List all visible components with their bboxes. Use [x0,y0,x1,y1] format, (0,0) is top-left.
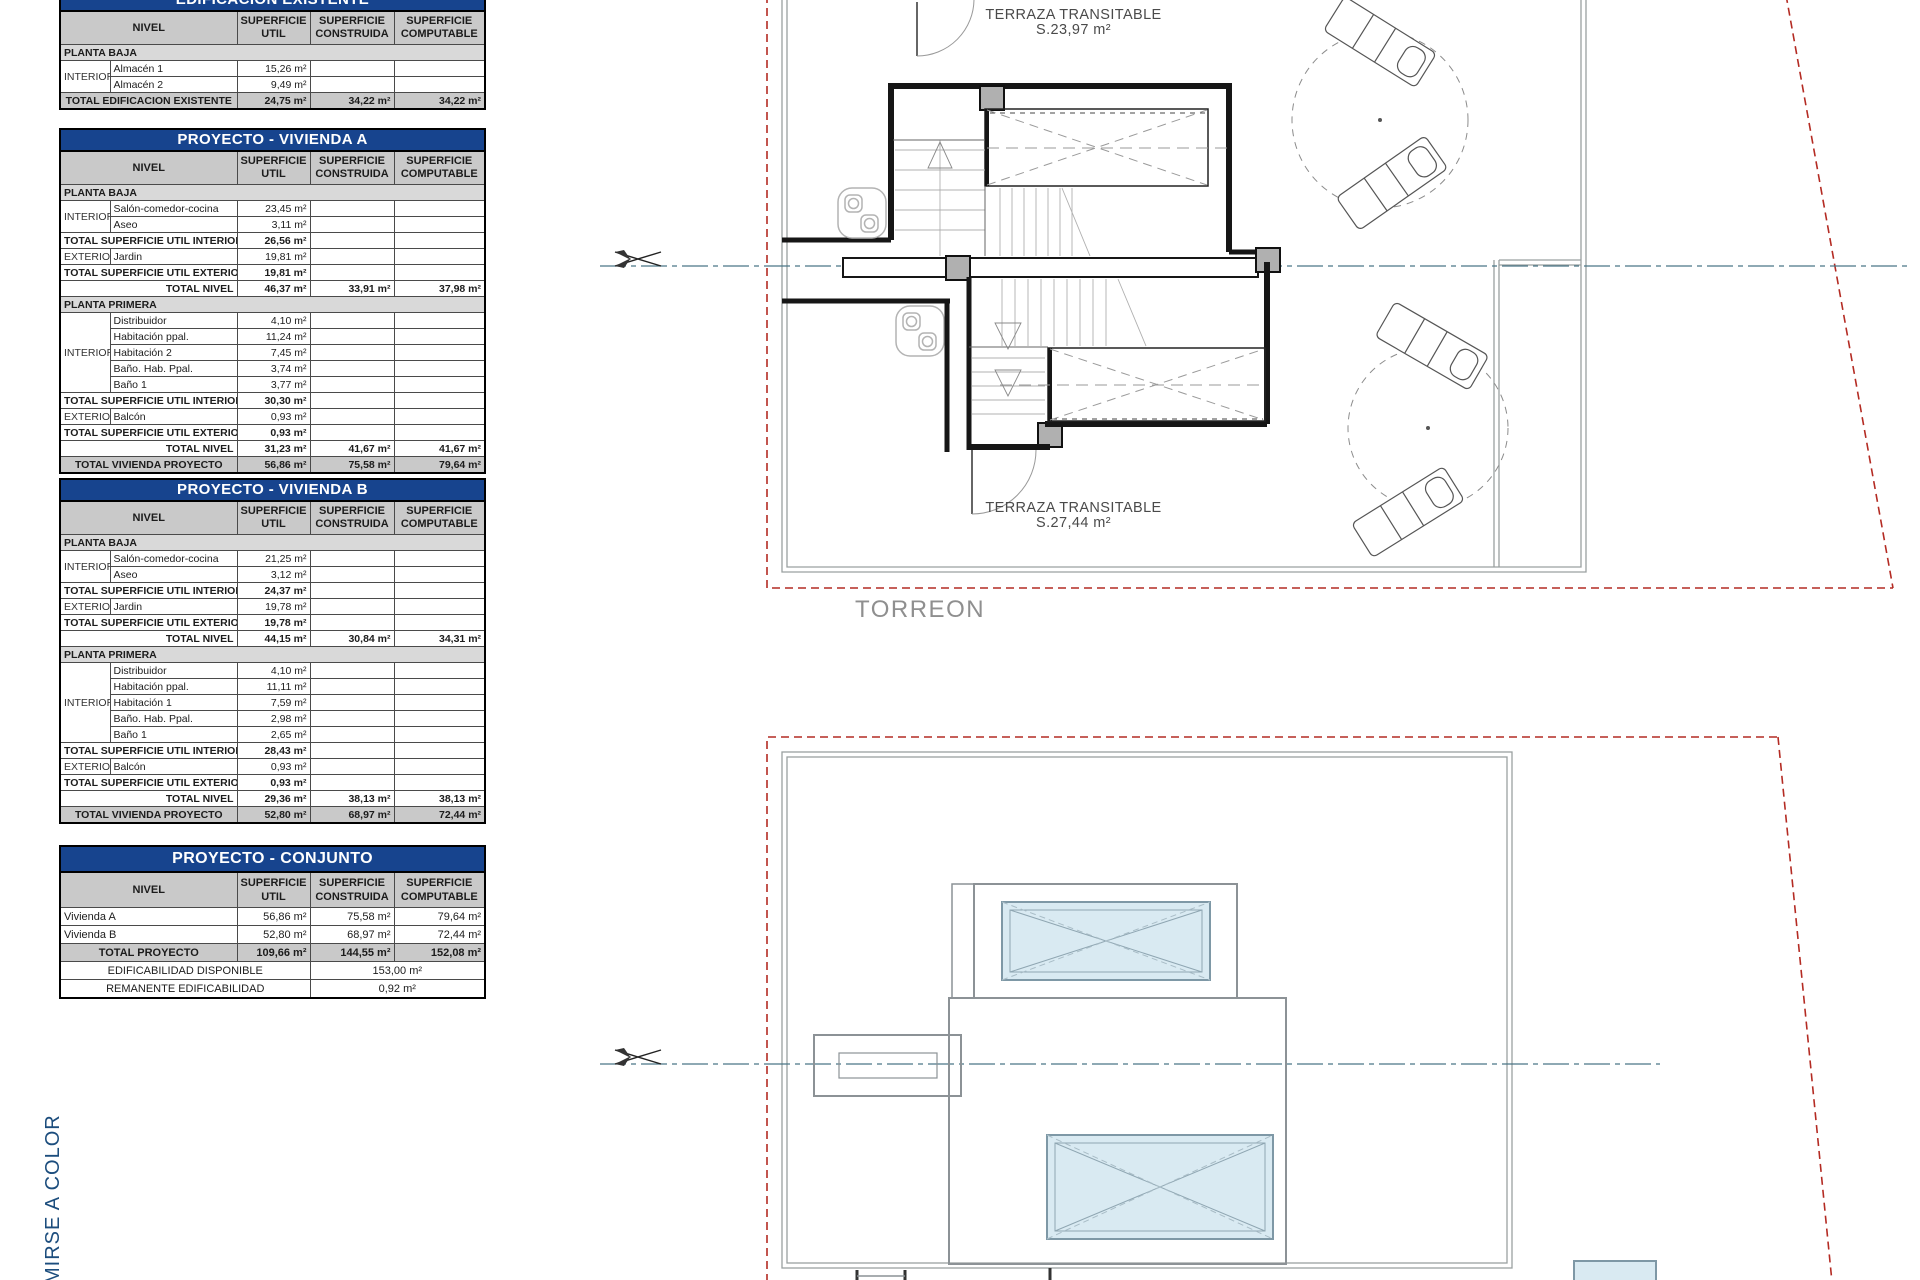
table-row: INTERIORDistribuidor4,10 m² [60,313,485,329]
grand-total-value: 75,58 m² [310,457,394,474]
area-value: 3,11 m² [237,217,310,233]
table-row: INTERIORSalón-comedor-cocina23,45 m² [60,201,485,217]
group-label: EXTERIOR [60,599,110,615]
area-value [310,345,394,361]
level-total-value: 38,13 m² [310,791,394,807]
bottom-plan [600,737,1832,1280]
plot-boundary-red [767,737,1832,1280]
grand-total-value: 109,66 m² [237,944,310,962]
area-value [310,377,394,393]
torreon-label: TORREON [855,596,985,624]
pool-skylight [1047,1135,1273,1239]
area-value [310,599,394,615]
level-total-value: 41,67 m² [310,441,394,457]
group-label: INTERIOR [60,201,110,233]
table-row: INTERIORAlmacén 115,26 m² [60,61,485,77]
col-header-nivel: NIVEL [60,501,237,535]
grand-total-label: TOTAL PROYECTO [60,944,237,962]
table-row: NIVELSUPERFICIE UTILSUPERFICIE CONSTRUID… [60,11,485,45]
area-value: 4,10 m² [237,663,310,679]
subtotal-label: TOTAL SUPERFICIE UTIL INTERIOR [60,583,237,599]
col-header-nivel: NIVEL [60,151,237,185]
col-header-construida: SUPERFICIE CONSTRUIDA [310,872,394,908]
area-value [394,345,485,361]
grand-total-value: 79,64 m² [394,457,485,474]
area-value [310,679,394,695]
section-row: PLANTA BAJA [60,185,485,201]
subtotal-value [394,393,485,409]
area-value [310,759,394,775]
terraza-label-top-line2: S.23,97 m² [951,23,1196,38]
table-row: Baño. Hab. Ppal.3,74 m² [60,361,485,377]
room-name: Habitación 2 [110,345,237,361]
table-row: Habitación ppal.11,24 m² [60,329,485,345]
grand-total-value: 24,75 m² [237,93,310,110]
table-row: NIVELSUPERFICIE UTILSUPERFICIE CONSTRUID… [60,151,485,185]
col-header-util: SUPERFICIE UTIL [237,11,310,45]
col-header-util: SUPERFICIE UTIL [237,501,310,535]
room-name: Habitación ppal. [110,679,237,695]
subtotal-value [394,425,485,441]
terraza-label-bottom-line1: TERRAZA TRANSITABLE [951,501,1196,516]
table-row: EXTERIORJardin19,81 m² [60,249,485,265]
table-row: Aseo3,11 m² [60,217,485,233]
table-row: PLANTA PRIMERA [60,297,485,313]
table-row: TOTAL SUPERFICIE UTIL EXTERIOR0,93 m² [60,425,485,441]
subtotal-value [310,425,394,441]
subtotal-value [310,265,394,281]
subtotal-label: TOTAL SUPERFICIE UTIL INTERIOR [60,743,237,759]
room-name: Distribuidor [110,313,237,329]
subtotal-value [310,743,394,759]
area-value [394,711,485,727]
area-value: 0,93 m² [237,409,310,425]
group-label: INTERIOR [60,61,110,93]
area-value [394,551,485,567]
room-name: Jardin [110,249,237,265]
table-row: TOTAL VIVIENDA PROYECTO56,86 m²75,58 m²7… [60,457,485,474]
dwelling-label: Vivienda A [60,908,237,926]
area-value: 3,77 m² [237,377,310,393]
subtotal-value [394,743,485,759]
subtotal-label: TOTAL SUPERFICIE UTIL EXTERIOR [60,265,237,281]
group-label: INTERIOR [60,313,110,393]
area-table-3: PROYECTO - CONJUNTONIVELSUPERFICIE UTILS… [59,845,486,999]
cutoff-walls [857,1268,1050,1280]
subtotal-value: 24,37 m² [237,583,310,599]
grand-total-label: TOTAL EDIFICACION EXISTENTE [60,93,237,110]
area-value: 11,24 m² [237,329,310,345]
level-total-label: TOTAL NIVEL [60,281,237,297]
level-total-value: 46,37 m² [237,281,310,297]
section-marker [615,250,661,268]
section-row: PLANTA PRIMERA [60,647,485,663]
table-row: NIVELSUPERFICIE UTILSUPERFICIE CONSTRUID… [60,501,485,535]
table-row: EXTERIORBalcón0,93 m² [60,409,485,425]
area-value [310,409,394,425]
room-name: Salón-comedor-cocina [110,201,237,217]
sun-lounger [1324,0,1437,88]
subtotal-value [394,233,485,249]
area-value [394,759,485,775]
room-name: Distribuidor [110,663,237,679]
section-row: PLANTA BAJA [60,535,485,551]
subtotal-label: TOTAL SUPERFICIE UTIL INTERIOR [60,393,237,409]
area-value: 19,81 m² [237,249,310,265]
table-row: TOTAL SUPERFICIE UTIL EXTERIOR19,81 m² [60,265,485,281]
group-label: EXTERIOR [60,249,110,265]
section-marker [615,1048,661,1066]
summary-label: EDIFICABILIDAD DISPONIBLE [60,962,310,980]
area-value [394,567,485,583]
grand-total-value: 52,80 m² [237,807,310,824]
area-table-0: EDIFICACION EXISTENTENIVELSUPERFICIE UTI… [59,0,486,110]
group-label: INTERIOR [60,551,110,583]
area-value [394,377,485,393]
table-row: Vivienda B52,80 m²68,97 m²72,44 m² [60,926,485,944]
table-row: TOTAL NIVEL46,37 m²33,91 m²37,98 m² [60,281,485,297]
room-name: Almacén 1 [110,61,237,77]
table-row: TOTAL NIVEL44,15 m²30,84 m²34,31 m² [60,631,485,647]
table-row: Vivienda A56,86 m²75,58 m²79,64 m² [60,908,485,926]
table-title: PROYECTO - VIVIENDA A [60,129,485,151]
area-value: 15,26 m² [237,61,310,77]
pool-skylight-partial [1574,1261,1656,1280]
subtotal-value: 0,93 m² [237,775,310,791]
area-value [310,711,394,727]
area-value: 7,45 m² [237,345,310,361]
grand-total-value: 152,08 m² [394,944,485,962]
level-total-value: 29,36 m² [237,791,310,807]
table-row: REMANENTE EDIFICABILIDAD0,92 m² [60,980,485,999]
table-row: PROYECTO - VIVIENDA B [60,479,485,501]
area-value: 23,45 m² [237,201,310,217]
area-value: 9,49 m² [237,77,310,93]
subtotal-label: TOTAL SUPERFICIE UTIL EXTERIOR [60,615,237,631]
party-wall [843,258,1258,277]
area-value: 7,59 m² [237,695,310,711]
table-row: PLANTA BAJA [60,45,485,61]
table-row: Baño 12,65 m² [60,727,485,743]
area-value: 11,11 m² [237,679,310,695]
col-header-util: SUPERFICIE UTIL [237,151,310,185]
table-title: EDIFICACION EXISTENTE [60,0,485,11]
table-row: Aseo3,12 m² [60,567,485,583]
subtotal-value [310,775,394,791]
area-value [310,217,394,233]
subtotal-value [394,615,485,631]
area-value: 19,78 m² [237,599,310,615]
section-row: PLANTA PRIMERA [60,297,485,313]
col-header-computable: SUPERFICIE COMPUTABLE [394,151,485,185]
dwelling-value: 52,80 m² [237,926,310,944]
area-value: 21,25 m² [237,551,310,567]
room-name: Balcón [110,409,237,425]
subtotal-value [394,265,485,281]
roof-hatch-a [985,109,1229,186]
table-title: PROYECTO - CONJUNTO [60,846,485,872]
group-label: EXTERIOR [60,409,110,425]
area-table-1: PROYECTO - VIVIENDA ANIVELSUPERFICIE UTI… [59,128,486,474]
dwelling-label: Vivienda B [60,926,237,944]
col-header-nivel: NIVEL [60,11,237,45]
terraza-label-bottom: TERRAZA TRANSITABLE S.27,44 m² [951,501,1196,531]
table-row: TOTAL SUPERFICIE UTIL INTERIOR30,30 m² [60,393,485,409]
subtotal-value: 0,93 m² [237,425,310,441]
terraza-label-top-line1: TERRAZA TRANSITABLE [951,8,1196,23]
area-value [394,313,485,329]
subtotal-value: 30,30 m² [237,393,310,409]
sun-lounger [1375,302,1489,391]
plan-sheet: TERRAZA TRANSITABLE S.23,97 m² TERRAZA T… [0,0,1920,1280]
level-total-value: 31,23 m² [237,441,310,457]
print-color-note: MIRSE A COLOR [42,1114,65,1280]
dwelling-value: 79,64 m² [394,908,485,926]
col-header-computable: SUPERFICIE COMPUTABLE [394,501,485,535]
subtotal-value [310,393,394,409]
area-value [394,61,485,77]
area-value [310,361,394,377]
area-value [310,249,394,265]
area-value [310,201,394,217]
subtotal-value: 19,78 m² [237,615,310,631]
room-name: Habitación ppal. [110,329,237,345]
level-total-value: 44,15 m² [237,631,310,647]
col-header-nivel: NIVEL [60,872,237,908]
sun-lounger [1336,136,1447,231]
room-name: Balcón [110,759,237,775]
area-value [394,663,485,679]
table-row: TOTAL SUPERFICIE UTIL EXTERIOR0,93 m² [60,775,485,791]
area-value [394,329,485,345]
walls-unit-b [782,262,1267,452]
area-value [310,695,394,711]
area-value [394,695,485,711]
area-value [310,567,394,583]
subtotal-value [310,583,394,599]
area-value [310,663,394,679]
area-value [394,409,485,425]
area-value [394,361,485,377]
group-label: EXTERIOR [60,759,110,775]
roof-hatch-b [1000,348,1265,421]
level-total-value: 37,98 m² [394,281,485,297]
table-row: Baño. Hab. Ppal.2,98 m² [60,711,485,727]
subtotal-label: TOTAL SUPERFICIE UTIL EXTERIOR [60,425,237,441]
room-name: Salón-comedor-cocina [110,551,237,567]
table-row: PROYECTO - VIVIENDA A [60,129,485,151]
col-header-computable: SUPERFICIE COMPUTABLE [394,11,485,45]
table-row: TOTAL EDIFICACION EXISTENTE24,75 m²34,22… [60,93,485,110]
stairs-a [893,140,1090,256]
area-value [394,201,485,217]
area-value [310,77,394,93]
table-row: TOTAL SUPERFICIE UTIL INTERIOR24,37 m² [60,583,485,599]
grand-total-value: 56,86 m² [237,457,310,474]
area-value: 3,74 m² [237,361,310,377]
grand-total-value: 34,22 m² [310,93,394,110]
table-row: INTERIORDistribuidor4,10 m² [60,663,485,679]
table-row: TOTAL NIVEL31,23 m²41,67 m²41,67 m² [60,441,485,457]
area-value [310,313,394,329]
grand-total-value: 144,55 m² [310,944,394,962]
area-value [394,599,485,615]
room-name: Habitación 1 [110,695,237,711]
dwelling-value: 68,97 m² [310,926,394,944]
area-value [394,217,485,233]
section-row: PLANTA BAJA [60,45,485,61]
level-total-label: TOTAL NIVEL [60,441,237,457]
area-value [310,727,394,743]
table-row: Habitación ppal.11,11 m² [60,679,485,695]
subtotal-value [394,775,485,791]
dwelling-value: 56,86 m² [237,908,310,926]
area-value [394,77,485,93]
dwelling-value: 72,44 m² [394,926,485,944]
area-value [394,249,485,265]
subtotal-value: 26,56 m² [237,233,310,249]
table-row: TOTAL PROYECTO109,66 m²144,55 m²152,08 m… [60,944,485,962]
sun-lounger [1352,466,1465,557]
area-value: 2,98 m² [237,711,310,727]
col-header-construida: SUPERFICIE CONSTRUIDA [310,151,394,185]
subtotal-value [310,233,394,249]
table-row: INTERIORSalón-comedor-cocina21,25 m² [60,551,485,567]
room-name: Baño 1 [110,727,237,743]
table-row: TOTAL SUPERFICIE UTIL EXTERIOR19,78 m² [60,615,485,631]
subtotal-value: 28,43 m² [237,743,310,759]
grand-total-value: 68,97 m² [310,807,394,824]
table-row: EXTERIORJardin19,78 m² [60,599,485,615]
table-row: TOTAL VIVIENDA PROYECTO52,80 m²68,97 m²7… [60,807,485,824]
area-value: 2,65 m² [237,727,310,743]
area-value: 0,93 m² [237,759,310,775]
table-row: Habitación 17,59 m² [60,695,485,711]
room-name: Aseo [110,217,237,233]
area-value [310,329,394,345]
table-row: EDIFICABILIDAD DISPONIBLE153,00 m² [60,962,485,980]
area-value: 4,10 m² [237,313,310,329]
col-header-construida: SUPERFICIE CONSTRUIDA [310,11,394,45]
col-header-util: SUPERFICIE UTIL [237,872,310,908]
room-name: Baño. Hab. Ppal. [110,361,237,377]
subtotal-value: 19,81 m² [237,265,310,281]
subtotal-value [394,583,485,599]
summary-label: REMANENTE EDIFICABILIDAD [60,980,310,999]
table-row: PLANTA BAJA [60,185,485,201]
table-row: TOTAL SUPERFICIE UTIL INTERIOR28,43 m² [60,743,485,759]
level-total-value: 33,91 m² [310,281,394,297]
level-total-value: 41,67 m² [394,441,485,457]
subtotal-label: TOTAL SUPERFICIE UTIL INTERIOR [60,233,237,249]
col-header-construida: SUPERFICIE CONSTRUIDA [310,501,394,535]
grand-total-label: TOTAL VIVIENDA PROYECTO [60,457,237,474]
area-value [394,727,485,743]
area-value: 3,12 m² [237,567,310,583]
level-total-value: 30,84 m² [310,631,394,647]
room-name: Baño. Hab. Ppal. [110,711,237,727]
table-row: EDIFICACION EXISTENTE [60,0,485,11]
grand-total-value: 34,22 m² [394,93,485,110]
table-title: PROYECTO - VIVIENDA B [60,479,485,501]
table-row: EXTERIORBalcón0,93 m² [60,759,485,775]
room-name: Jardin [110,599,237,615]
table-row: PLANTA BAJA [60,535,485,551]
grand-total-value: 72,44 m² [394,807,485,824]
summary-value: 153,00 m² [310,962,485,980]
area-table-2: PROYECTO - VIVIENDA BNIVELSUPERFICIE UTI… [59,478,486,824]
table-row: PLANTA PRIMERA [60,647,485,663]
col-header-computable: SUPERFICIE COMPUTABLE [394,872,485,908]
area-value [310,61,394,77]
table-row: TOTAL NIVEL29,36 m²38,13 m²38,13 m² [60,791,485,807]
area-value [394,679,485,695]
dwelling-value: 75,58 m² [310,908,394,926]
area-value [310,551,394,567]
toilet-fixture [838,188,886,238]
group-label: INTERIOR [60,663,110,743]
grand-total-label: TOTAL VIVIENDA PROYECTO [60,807,237,824]
level-total-label: TOTAL NIVEL [60,791,237,807]
stairs-b [969,279,1146,414]
terraza-label-bottom-line2: S.27,44 m² [951,516,1196,531]
subtotal-value [310,615,394,631]
table-row: Almacén 29,49 m² [60,77,485,93]
summary-value: 0,92 m² [310,980,485,999]
table-row: Baño 13,77 m² [60,377,485,393]
top-plan [600,0,1910,588]
level-total-value: 38,13 m² [394,791,485,807]
level-total-label: TOTAL NIVEL [60,631,237,647]
table-row: PROYECTO - CONJUNTO [60,846,485,872]
room-name: Almacén 2 [110,77,237,93]
terraza-label-top: TERRAZA TRANSITABLE S.23,97 m² [951,8,1196,38]
level-total-value: 34,31 m² [394,631,485,647]
table-row: TOTAL SUPERFICIE UTIL INTERIOR26,56 m² [60,233,485,249]
room-name: Aseo [110,567,237,583]
toilet-fixture [896,306,944,356]
room-name: Baño 1 [110,377,237,393]
pool-skylight [1002,902,1210,980]
table-row: Habitación 27,45 m² [60,345,485,361]
table-row: NIVELSUPERFICIE UTILSUPERFICIE CONSTRUID… [60,872,485,908]
subtotal-label: TOTAL SUPERFICIE UTIL EXTERIOR [60,775,237,791]
